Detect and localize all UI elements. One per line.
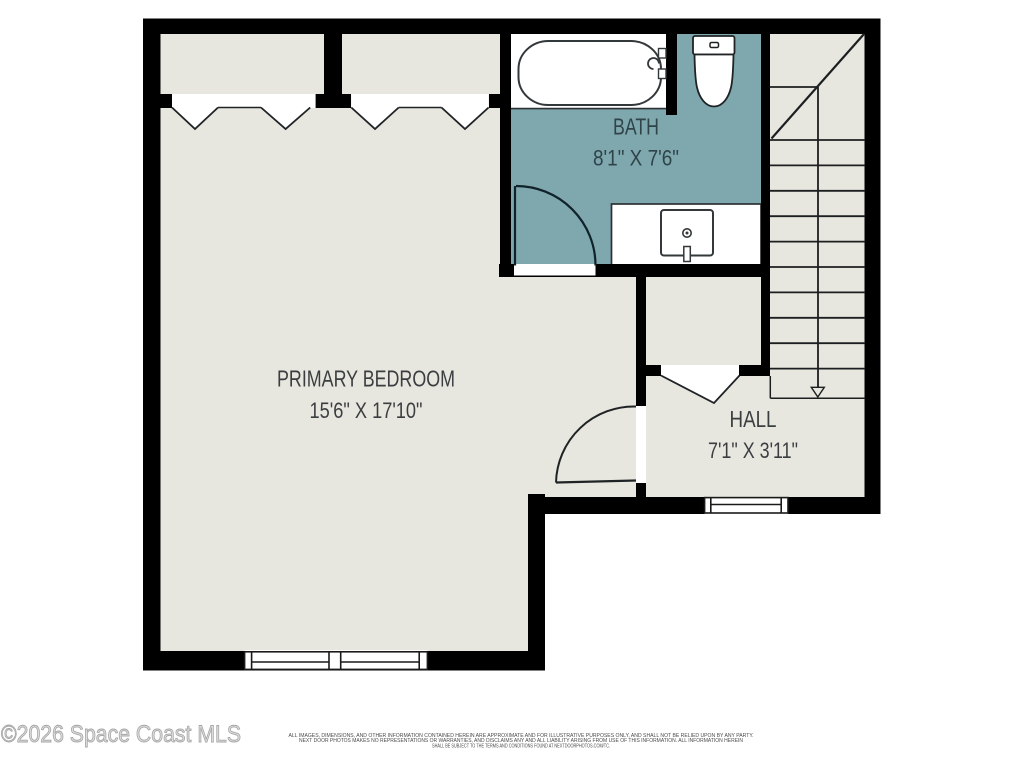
svg-text:HALL: HALL [730,406,777,432]
svg-text:SHALL BE SUBJECT TO THE TERMS: SHALL BE SUBJECT TO THE TERMS AND CONDIT… [432,743,610,749]
svg-text:7'1" X 3'11": 7'1" X 3'11" [708,438,798,463]
svg-text:8'1" X 7'6": 8'1" X 7'6" [593,145,679,170]
svg-text:BATH: BATH [613,113,659,139]
svg-text:15'6" X 17'10": 15'6" X 17'10" [310,398,423,423]
svg-text:©2026 Space Coast MLS: ©2026 Space Coast MLS [1,721,241,748]
svg-text:PRIMARY BEDROOM: PRIMARY BEDROOM [277,365,455,391]
